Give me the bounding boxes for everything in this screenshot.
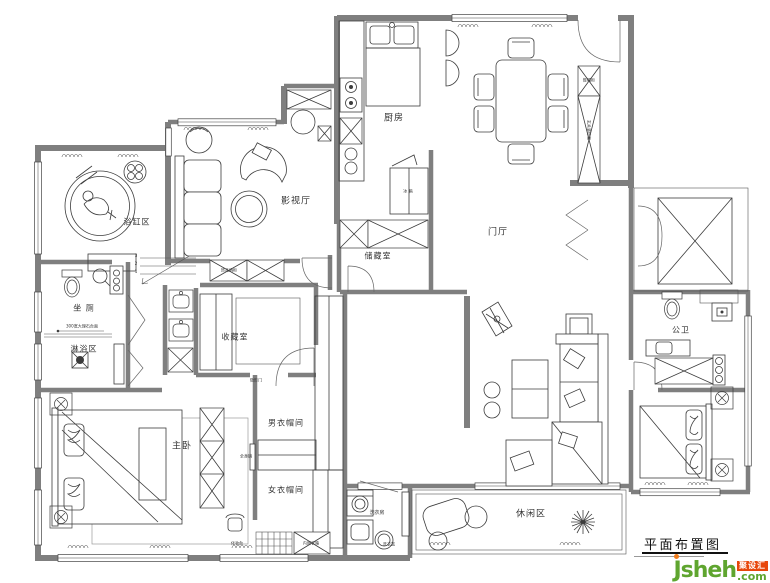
- label-hidden-door: 隐形门: [250, 377, 262, 383]
- label-laundry-basket: 洗衣篮: [383, 541, 395, 547]
- dining-area: [474, 38, 568, 164]
- collection-room: [200, 294, 300, 370]
- elevator-lobby: [634, 188, 748, 291]
- shower-room: [57, 330, 124, 384]
- label-shoe-cabinet: 鞋帽柜: [583, 77, 595, 83]
- living-room: [482, 302, 608, 486]
- room-label-foyer: 门厅: [488, 225, 508, 238]
- label-deco-wine-cabinet: 饰品酒柜: [221, 267, 237, 273]
- room-label-leisure: 休闲区: [516, 507, 546, 520]
- second-bedroom: [640, 387, 733, 481]
- title-block: 平面布置图: [634, 534, 770, 553]
- label-marble-sill: 300宽大理石台面: [66, 323, 98, 329]
- logo-brand-text: Jsheh: [673, 560, 736, 582]
- plan-title: 平面布置图: [634, 534, 770, 553]
- laundry-room: [347, 490, 409, 549]
- room-label-kitchen: 厨房: [384, 111, 404, 124]
- room-label-bathtub: 浴缸区: [124, 217, 151, 228]
- top-balcony: [287, 90, 331, 141]
- label-step-3: 3: [135, 254, 138, 259]
- label-fridge: 冰 箱: [403, 188, 412, 194]
- master-bedroom: [50, 393, 248, 544]
- label-entry-cabinet: 玄关装饰柜: [586, 120, 592, 140]
- vanity-corridor: [168, 290, 193, 372]
- title-underline-2: [634, 556, 704, 557]
- room-label-master: 主卧: [172, 439, 192, 452]
- room-label-guest-bath: 公卫: [672, 325, 690, 336]
- title-underline: [642, 552, 728, 554]
- room-label-shower: 淋浴区: [71, 344, 98, 355]
- logo-tld: .com: [737, 571, 767, 582]
- room-label-storage: 储藏室: [365, 251, 392, 262]
- room-label-toilet: 坐 厕: [73, 303, 95, 314]
- label-built-in-box: 内嵌衣箱: [303, 540, 319, 546]
- label-step-2: 2: [135, 262, 138, 267]
- label-step-1: 1: [135, 270, 138, 275]
- storage-room: [340, 220, 428, 248]
- room-label-collection: 收藏室: [222, 332, 249, 343]
- floor-plan: 浴缸区 坐 厕 淋浴区 影视厅 厨房 门厅 储藏室 收藏室 主卧 男衣帽间 女衣…: [0, 0, 770, 583]
- room-label-women-closet: 女衣帽间: [268, 485, 304, 496]
- label-vanity-table: 化妆台: [231, 540, 243, 546]
- label-full-mirror: 全身镜: [240, 453, 252, 459]
- room-label-laundry: 洗衣房: [370, 508, 385, 515]
- watermark-logo: Jsheh 聚设汇 .com: [673, 560, 768, 582]
- guest-bathroom: [646, 290, 738, 385]
- room-label-media: 影视厅: [281, 194, 311, 207]
- room-label-men-closet: 男衣帽间: [268, 418, 304, 429]
- floor-plan-drawing: [0, 0, 770, 583]
- leisure-balcony: [412, 490, 626, 554]
